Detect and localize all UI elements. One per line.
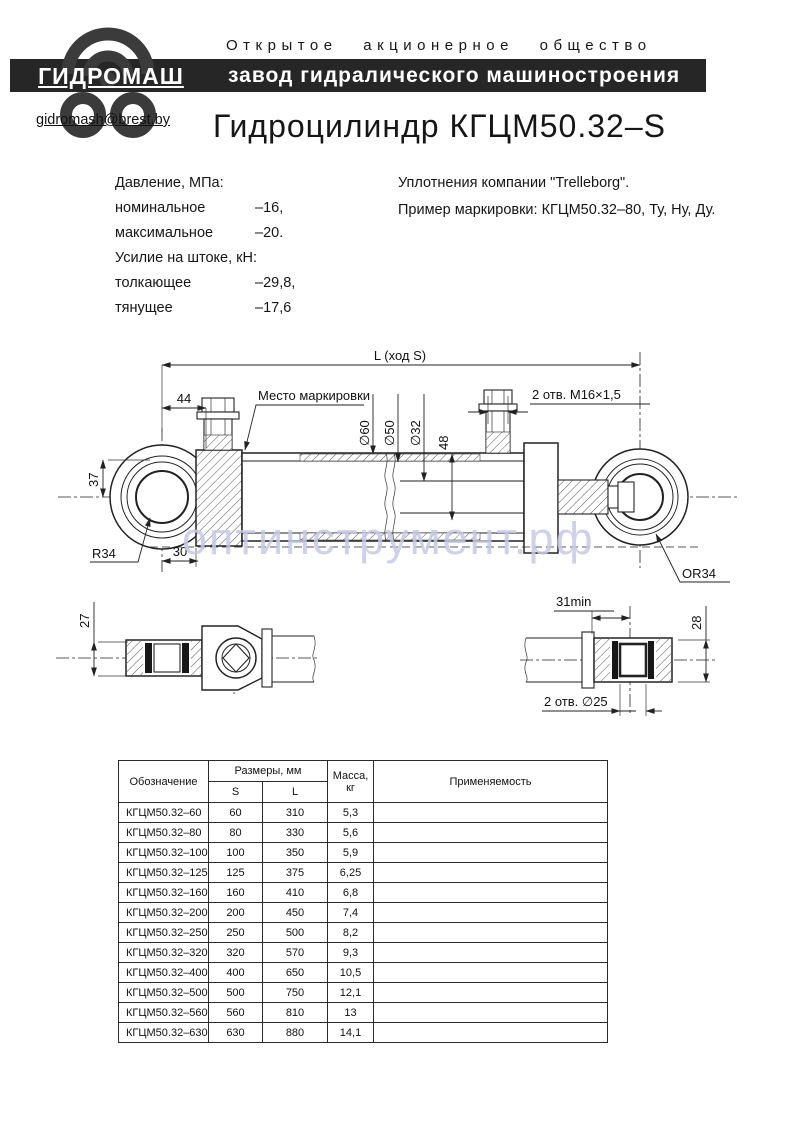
cell-application	[374, 883, 608, 903]
cell-mass: 14,1	[328, 1023, 374, 1043]
cell-designation: КГЦМ50.32–125	[119, 863, 209, 883]
cell-l: 500	[263, 923, 328, 943]
cell-designation: КГЦМ50.32–200	[119, 903, 209, 923]
table-row: КГЦМ50.32–40040065010,5	[119, 963, 608, 983]
dim-28: 28	[689, 616, 704, 630]
cell-s: 60	[209, 803, 263, 823]
logo-wordmark: ГИДРОМАШ	[26, 63, 196, 90]
cell-l: 450	[263, 903, 328, 923]
spec-label: тянущее	[115, 296, 255, 321]
dim-dia60: ∅60	[357, 420, 372, 446]
table-row: КГЦМ50.32–1251253756,25	[119, 863, 608, 883]
spec-value: –17,6	[255, 296, 291, 321]
dim-r34-left: R34	[92, 546, 116, 561]
cell-mass: 6,8	[328, 883, 374, 903]
dim-31min: 31min	[556, 594, 591, 609]
cell-s: 400	[209, 963, 263, 983]
specs-block: Давление, МПа: номинальное –16, максимал…	[115, 171, 295, 321]
bottom-holes-label: 2 отв. ∅25	[544, 694, 608, 709]
spec-label: максимальное	[115, 221, 255, 246]
cell-s: 250	[209, 923, 263, 943]
table-row: КГЦМ50.32–3203205709,3	[119, 943, 608, 963]
cell-l: 810	[263, 1003, 328, 1023]
table-row: КГЦМ50.32–80803305,6	[119, 823, 608, 843]
col-header-sizes: Размеры, мм	[209, 761, 328, 782]
dim-44: 44	[177, 391, 191, 406]
datasheet-page: Открытое акционерное общество завод гидр…	[0, 0, 793, 1123]
col-header-s: S	[209, 782, 263, 803]
cell-s: 320	[209, 943, 263, 963]
table-row: КГЦМ50.32–63063088014,1	[119, 1023, 608, 1043]
top-holes-label: 2 отв. М16×1,5	[532, 387, 621, 402]
dim-dia32: ∅32	[408, 420, 423, 446]
cell-application	[374, 983, 608, 1003]
col-header-l: L	[263, 782, 328, 803]
cell-l: 750	[263, 983, 328, 1003]
dim-overall-length: L (ход S)	[374, 348, 426, 363]
dim-dia50: ∅50	[382, 420, 397, 446]
cell-mass: 8,2	[328, 923, 374, 943]
cell-mass: 7,4	[328, 903, 374, 923]
spec-row: толкающее –29,8,	[115, 271, 295, 296]
cell-mass: 9,3	[328, 943, 374, 963]
cell-s: 160	[209, 883, 263, 903]
cell-application	[374, 1023, 608, 1043]
cell-application	[374, 823, 608, 843]
notes-block: Уплотнения компании "Trelleborg". Пример…	[398, 170, 715, 224]
cell-mass: 6,25	[328, 863, 374, 883]
table-row: КГЦМ50.32–1001003505,9	[119, 843, 608, 863]
cell-application	[374, 1003, 608, 1023]
cell-l: 310	[263, 803, 328, 823]
table-row: КГЦМ50.32–60603105,3	[119, 803, 608, 823]
spec-label: толкающее	[115, 271, 255, 296]
cell-mass: 13	[328, 1003, 374, 1023]
spec-value: –20.	[255, 221, 283, 246]
cell-s: 125	[209, 863, 263, 883]
cell-mass: 10,5	[328, 963, 374, 983]
dim-r34-right: OR34	[682, 566, 716, 581]
spec-row: максимальное –20.	[115, 221, 295, 246]
dim-48: 48	[436, 436, 451, 450]
cell-application	[374, 923, 608, 943]
spec-label: номинальное	[115, 196, 255, 221]
dim-27: 27	[77, 614, 92, 628]
col-header-mass: Масса, кг	[328, 761, 374, 803]
org-type-line: Открытое акционерное общество	[226, 37, 652, 54]
cell-application	[374, 903, 608, 923]
cell-designation: КГЦМ50.32–320	[119, 943, 209, 963]
cell-application	[374, 843, 608, 863]
cell-designation: КГЦМ50.32–100	[119, 843, 209, 863]
cell-s: 500	[209, 983, 263, 1003]
spec-row: номинальное –16,	[115, 196, 295, 221]
cell-s: 200	[209, 903, 263, 923]
cell-mass: 12,1	[328, 983, 374, 1003]
cell-application	[374, 863, 608, 883]
col-header-mass-line2: кг	[328, 782, 373, 794]
col-header-designation: Обозначение	[119, 761, 209, 803]
marking-place-label: Место маркировки	[258, 388, 370, 403]
seals-note: Уплотнения компании "Trelleborg".	[398, 170, 715, 197]
email-link[interactable]: gidromash@brest.by	[36, 112, 170, 128]
table-row: КГЦМ50.32–50050075012,1	[119, 983, 608, 1003]
cell-l: 330	[263, 823, 328, 843]
cell-s: 80	[209, 823, 263, 843]
cell-s: 630	[209, 1023, 263, 1043]
page-title: Гидроцилиндр КГЦМ50.32–S	[213, 108, 666, 145]
cell-mass: 5,9	[328, 843, 374, 863]
cell-l: 570	[263, 943, 328, 963]
cell-l: 880	[263, 1023, 328, 1043]
spec-row: тянущее –17,6	[115, 296, 295, 321]
cell-designation: КГЦМ50.32–160	[119, 883, 209, 903]
cell-mass: 5,3	[328, 803, 374, 823]
table-row: КГЦМ50.32–2502505008,2	[119, 923, 608, 943]
cell-l: 350	[263, 843, 328, 863]
col-header-mass-line1: Масса,	[328, 770, 373, 782]
force-heading: Усилие на штоке, кН:	[115, 246, 257, 271]
watermark: оптинструмент.рф	[182, 513, 595, 564]
cell-l: 650	[263, 963, 328, 983]
cell-s: 560	[209, 1003, 263, 1023]
spec-value: –29,8,	[255, 271, 295, 296]
cell-designation: КГЦМ50.32–60	[119, 803, 209, 823]
table-row: КГЦМ50.32–1601604106,8	[119, 883, 608, 903]
pressure-heading: Давление, МПа:	[115, 171, 255, 196]
col-header-application: Применяемость	[374, 761, 608, 803]
cell-designation: КГЦМ50.32–250	[119, 923, 209, 943]
cell-application	[374, 803, 608, 823]
marking-example-note: Пример маркировки: КГЦМ50.32–80, Ту, Ну,…	[398, 197, 715, 224]
spec-value: –16,	[255, 196, 283, 221]
dim-37: 37	[86, 473, 101, 487]
cell-designation: КГЦМ50.32–630	[119, 1023, 209, 1043]
cell-application	[374, 963, 608, 983]
cell-mass: 5,6	[328, 823, 374, 843]
cell-designation: КГЦМ50.32–400	[119, 963, 209, 983]
sizes-table: Обозначение Размеры, мм Масса, кг Примен…	[118, 760, 608, 1043]
cell-s: 100	[209, 843, 263, 863]
table-row: КГЦМ50.32–56056081013	[119, 1003, 608, 1023]
cell-designation: КГЦМ50.32–500	[119, 983, 209, 1003]
org-name-text: завод гидралического машиностроения	[228, 59, 680, 92]
cell-designation: КГЦМ50.32–80	[119, 823, 209, 843]
table-row: КГЦМ50.32–2002004507,4	[119, 903, 608, 923]
cell-l: 375	[263, 863, 328, 883]
cell-application	[374, 943, 608, 963]
technical-drawing: L (ход S) 44 Место маркировки 2 отв. М16…	[0, 340, 793, 730]
cell-designation: КГЦМ50.32–560	[119, 1003, 209, 1023]
spec-table-body: КГЦМ50.32–60603105,3КГЦМ50.32–80803305,6…	[119, 803, 608, 1043]
cell-l: 410	[263, 883, 328, 903]
